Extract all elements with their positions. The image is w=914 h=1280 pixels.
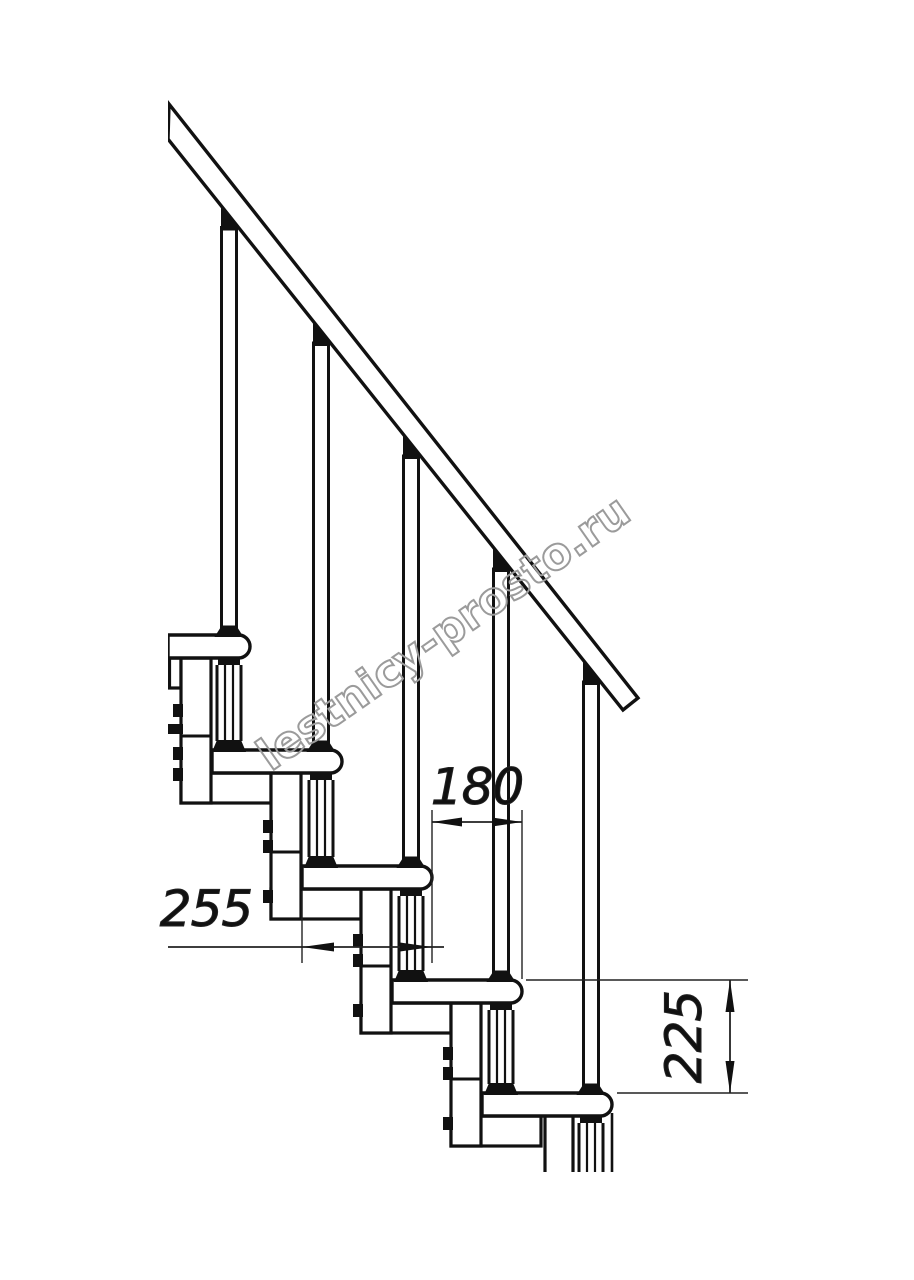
spine-column: [181, 658, 211, 803]
staircase-drawing: 180 255 225 lestnicy-prosto.ru: [0, 0, 914, 1280]
tread: [302, 866, 432, 889]
bolt-tab: [353, 1004, 363, 1017]
baluster: [584, 682, 599, 1085]
dimension-riser-height-label: 225: [655, 991, 713, 1083]
tread-nut: [580, 1116, 602, 1123]
technical-drawing-page: 180 255 225 lestnicy-prosto.ru: [0, 0, 914, 1280]
bolt-tab: [443, 1117, 453, 1130]
dimension-tread-depth-label: 255: [160, 880, 252, 938]
tread-nut: [490, 1003, 512, 1010]
tread: [168, 635, 250, 658]
bolt-tab: [263, 820, 273, 833]
bolt-tab: [443, 1067, 453, 1080]
bolt-tab: [353, 954, 363, 967]
spine-column: [361, 889, 391, 1033]
tread-nut: [400, 889, 422, 896]
bolt-tab: [173, 704, 183, 717]
baluster: [222, 228, 237, 628]
bolt-tab: [263, 890, 273, 903]
tread-nut: [218, 658, 240, 665]
bolt-tab: [263, 840, 273, 853]
tread-nut: [310, 773, 332, 780]
spine-column: [451, 1003, 481, 1146]
baluster-base: [304, 856, 338, 868]
baluster-base: [484, 1083, 518, 1095]
bolt-tab: [353, 934, 363, 947]
bolt-tab: [173, 747, 183, 760]
baluster-base: [394, 970, 428, 982]
baluster: [314, 343, 329, 742]
bolt-tab: [443, 1047, 453, 1060]
tread: [482, 1093, 612, 1116]
spine-column: [271, 773, 301, 919]
tread: [392, 980, 522, 1003]
dimension-run-label: 180: [431, 758, 523, 816]
bolt-tab: [173, 768, 183, 781]
baluster-base: [212, 740, 246, 752]
